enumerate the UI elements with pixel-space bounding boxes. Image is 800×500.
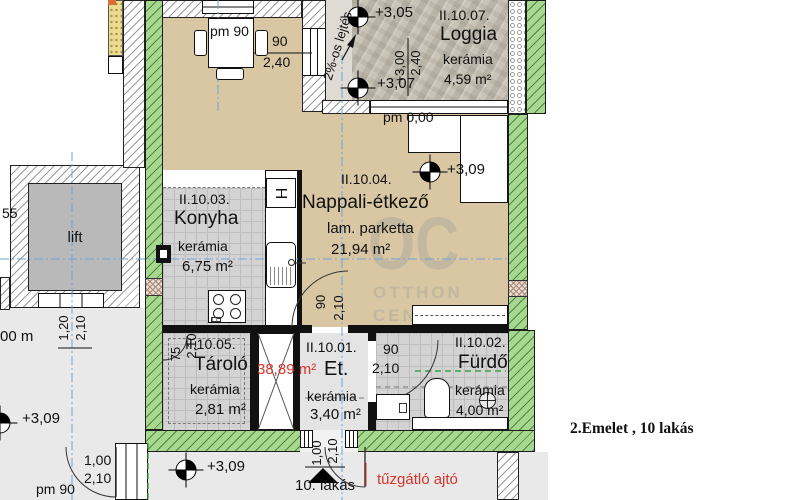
level-label: +3,07 xyxy=(377,76,415,93)
dim-00m: 00 m xyxy=(0,329,33,346)
chair xyxy=(194,30,207,56)
bath-door-width: 90 xyxy=(383,342,399,357)
pm000-label: pm 0,00 xyxy=(383,110,434,125)
lift-label: lift xyxy=(68,230,83,247)
room-area-storage: 2,81 m² xyxy=(195,402,246,419)
entrance-dim-100: 1,00 xyxy=(310,440,324,465)
shaft-cross xyxy=(258,333,294,430)
room-area-entry: 3,40 m² xyxy=(310,407,361,424)
level-marker-icon xyxy=(420,162,441,183)
room-name-storage: Tároló xyxy=(194,355,248,376)
corridor-sill-label: pm 90 xyxy=(36,482,75,497)
kitchen-sink xyxy=(266,242,296,288)
room-area-bath: 4,00 m² xyxy=(456,403,503,418)
room-name-kitchen: Konyha xyxy=(174,209,238,230)
room-floor-living: lam. parketta xyxy=(327,221,414,238)
bathtub xyxy=(412,417,508,430)
room-floor-storage: kerámia xyxy=(190,382,240,397)
dim-55: 55 xyxy=(2,206,18,221)
chair xyxy=(255,30,268,56)
corridor-dim-210: 2,10 xyxy=(84,471,111,486)
storage-door-width: 75 xyxy=(169,347,183,361)
room-id-entry: II.10.01. xyxy=(306,340,357,355)
room-id-loggia: II.10.07. xyxy=(439,8,490,23)
room-floor-entry: kerámia xyxy=(307,389,357,404)
room-id-bath: II.10.02. xyxy=(455,335,506,350)
fire-door-label: tűzgátló ajtó xyxy=(377,472,458,489)
toilet xyxy=(424,378,450,418)
room-id-kitchen: II.10.03. xyxy=(179,192,230,207)
room-floor-kitchen: kerámia xyxy=(178,239,228,254)
room-floor-bath: kerámia xyxy=(455,383,505,398)
entrance-dim-210: 2,10 xyxy=(326,438,340,463)
stove xyxy=(208,290,246,323)
level-label: +3,09 xyxy=(207,459,245,476)
level-label: +3,09 xyxy=(447,162,485,179)
room-floor-loggia: kerámia xyxy=(443,52,493,67)
room-area-living: 21,94 m² xyxy=(331,242,390,259)
fridge-symbol xyxy=(276,189,287,198)
washing-machine xyxy=(376,394,410,420)
stove-burner xyxy=(230,294,241,305)
bath-door-height: 2,10 xyxy=(372,361,399,376)
total-area-label: 38,89 m² xyxy=(257,362,316,379)
stove-burner xyxy=(213,294,224,305)
room-area-loggia: 4,59 m² xyxy=(444,72,491,87)
stove-panel xyxy=(211,317,221,322)
level-label: +3,09 xyxy=(22,411,60,428)
loggia-door-height: 2,40 xyxy=(263,55,290,70)
panel-symbol xyxy=(156,245,171,263)
room-name-bath: Fürdő xyxy=(458,353,508,374)
sofa-chaise xyxy=(460,115,508,203)
room-name-living: Nappali-étkező xyxy=(302,193,429,214)
room-id-storage: II.10.05. xyxy=(185,337,236,352)
level-marker-icon xyxy=(176,460,197,481)
panel-symbol-inner xyxy=(160,250,167,258)
room-id-living: II.10.04. xyxy=(341,172,392,187)
room-name-loggia: Loggia xyxy=(440,25,497,46)
room-name-entry: Et. xyxy=(324,358,348,380)
sill-height-label: pm 90 xyxy=(210,24,249,39)
level-marker-icon xyxy=(348,78,369,99)
floor-title: 2.Emelet , 10 lakás xyxy=(570,420,694,437)
level-label: +3,05 xyxy=(375,5,413,22)
stove-burner xyxy=(230,308,241,319)
loggia-vert-dim2: 2,40 xyxy=(409,50,423,75)
loggia-door-width: 90 xyxy=(272,34,288,49)
washing-machine-detail xyxy=(399,403,407,413)
entry-door-height: 2,10 xyxy=(332,295,346,320)
lift-dim-120: 1,20 xyxy=(57,315,71,340)
fridge xyxy=(266,178,296,208)
lift-dim-210: 2,10 xyxy=(74,315,88,340)
apartment-label: 10. lakás xyxy=(295,478,355,495)
room-area-kitchen: 6,75 m² xyxy=(182,259,233,276)
sideboard xyxy=(412,305,508,325)
entry-door-width: 90 xyxy=(314,295,328,309)
sideboard-dash xyxy=(415,315,505,316)
chair xyxy=(216,68,244,80)
corridor-dim-100: 1,00 xyxy=(84,453,111,468)
sink-tap xyxy=(288,259,295,266)
sink-drain xyxy=(270,267,292,285)
floor-plan: OC OTTHON CENTRUM xyxy=(0,0,800,500)
